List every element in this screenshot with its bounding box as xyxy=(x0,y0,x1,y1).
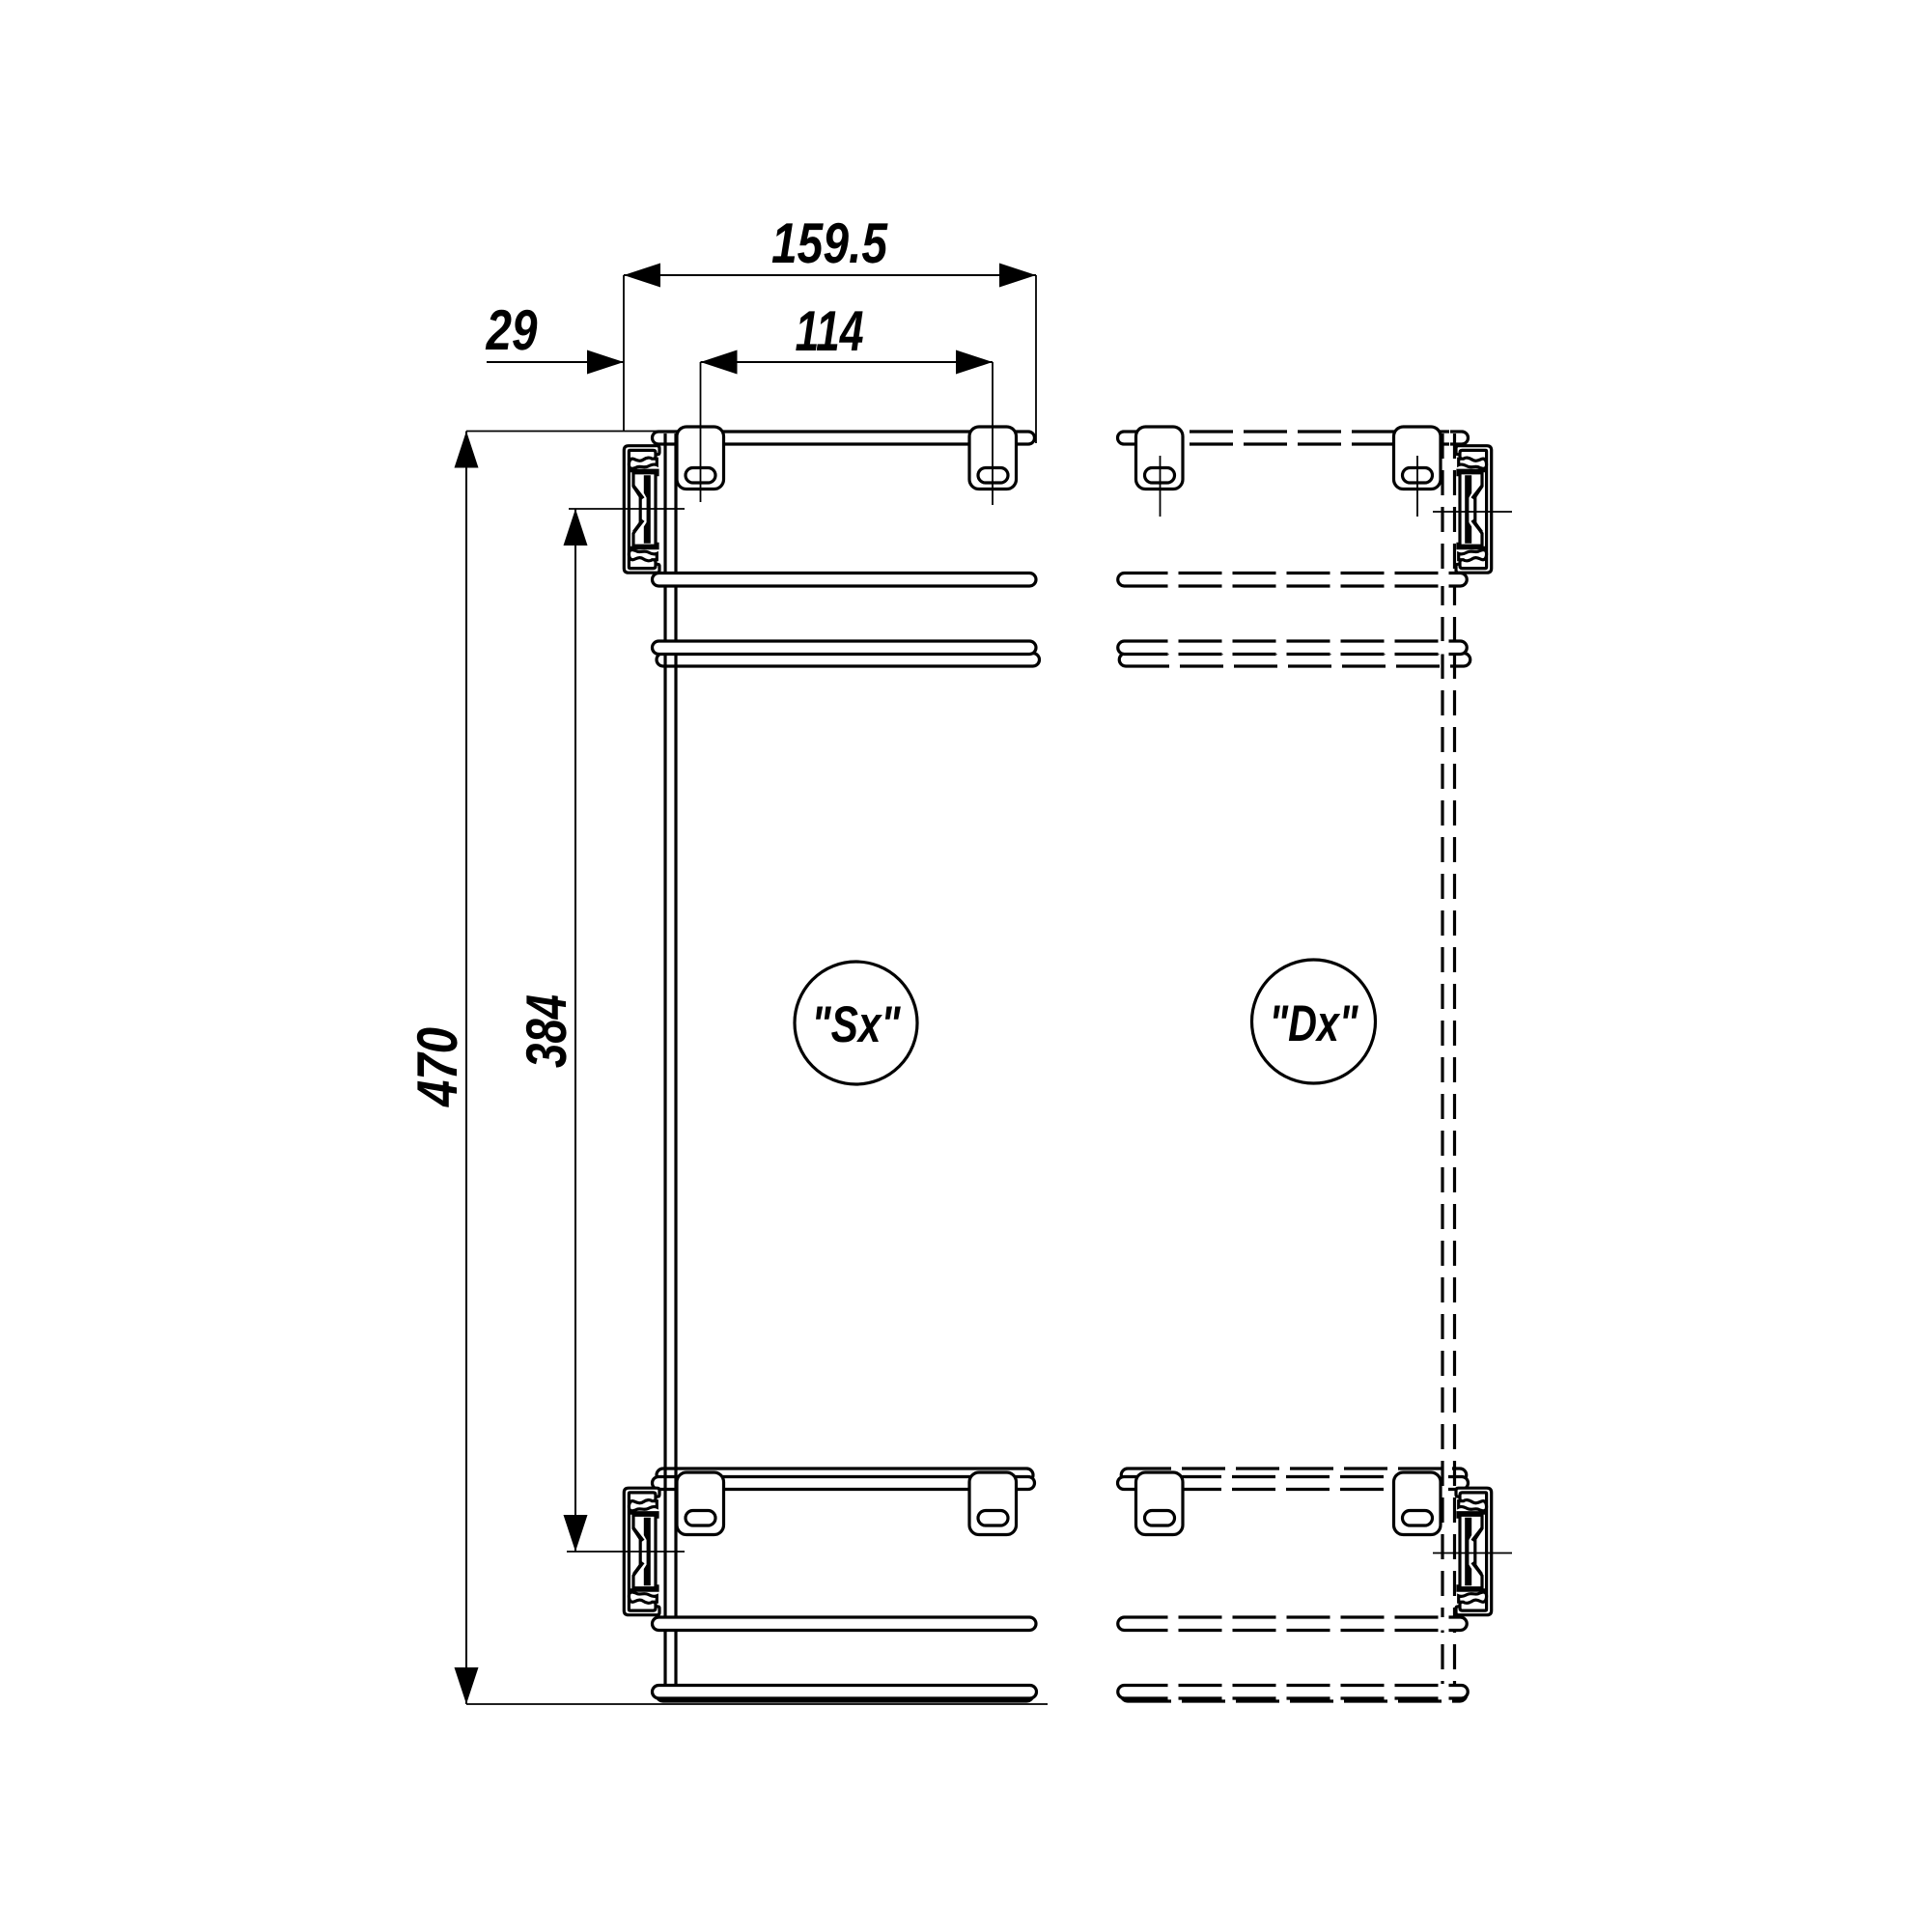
svg-text:470: 470 xyxy=(406,1027,469,1107)
svg-text:29: 29 xyxy=(486,298,538,362)
svg-text:"Sx": "Sx" xyxy=(812,996,902,1053)
svg-text:"Dx": "Dx" xyxy=(1270,995,1359,1052)
svg-text:114: 114 xyxy=(796,299,864,363)
svg-text:384: 384 xyxy=(515,994,578,1068)
svg-text:159.5: 159.5 xyxy=(771,211,888,275)
